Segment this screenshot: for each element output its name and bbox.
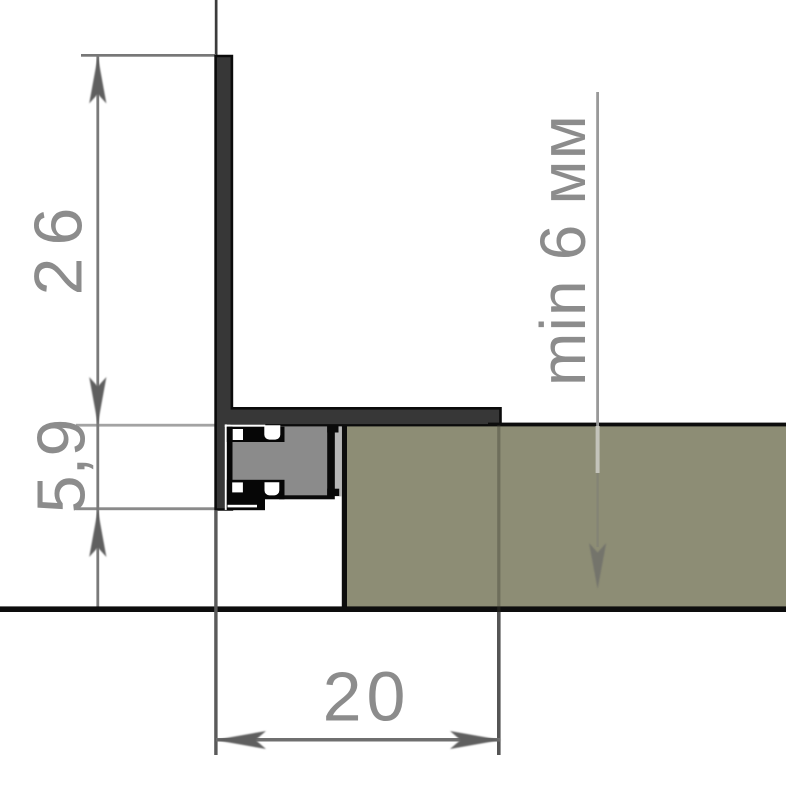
svg-text:5,9: 5,9 — [24, 419, 100, 514]
svg-text:min 6 мм: min 6 мм — [527, 114, 599, 386]
svg-text:20: 20 — [323, 658, 411, 736]
svg-text:26: 26 — [21, 196, 97, 296]
